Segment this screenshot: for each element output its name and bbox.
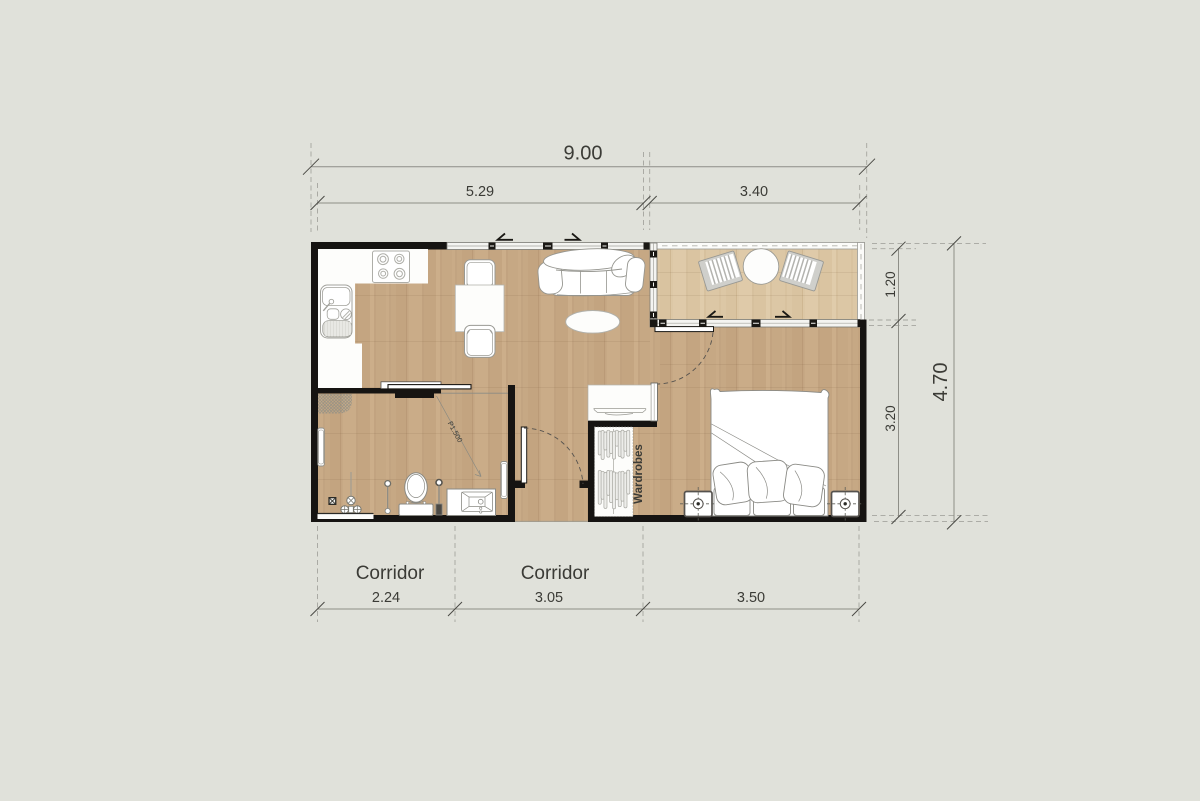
svg-text:Corridor: Corridor	[521, 563, 590, 584]
svg-text:4.70: 4.70	[930, 363, 952, 402]
svg-text:Wardrobes: Wardrobes	[633, 444, 645, 504]
svg-text:5.29: 5.29	[466, 184, 494, 200]
svg-text:2.24: 2.24	[372, 590, 400, 606]
svg-text:3.05: 3.05	[535, 590, 563, 606]
svg-text:3.50: 3.50	[737, 590, 765, 606]
svg-text:3.40: 3.40	[740, 184, 768, 200]
svg-text:3.20: 3.20	[883, 405, 898, 431]
svg-text:1.20: 1.20	[883, 271, 898, 297]
svg-text:Corridor: Corridor	[356, 563, 425, 584]
svg-text:9.00: 9.00	[564, 143, 603, 165]
